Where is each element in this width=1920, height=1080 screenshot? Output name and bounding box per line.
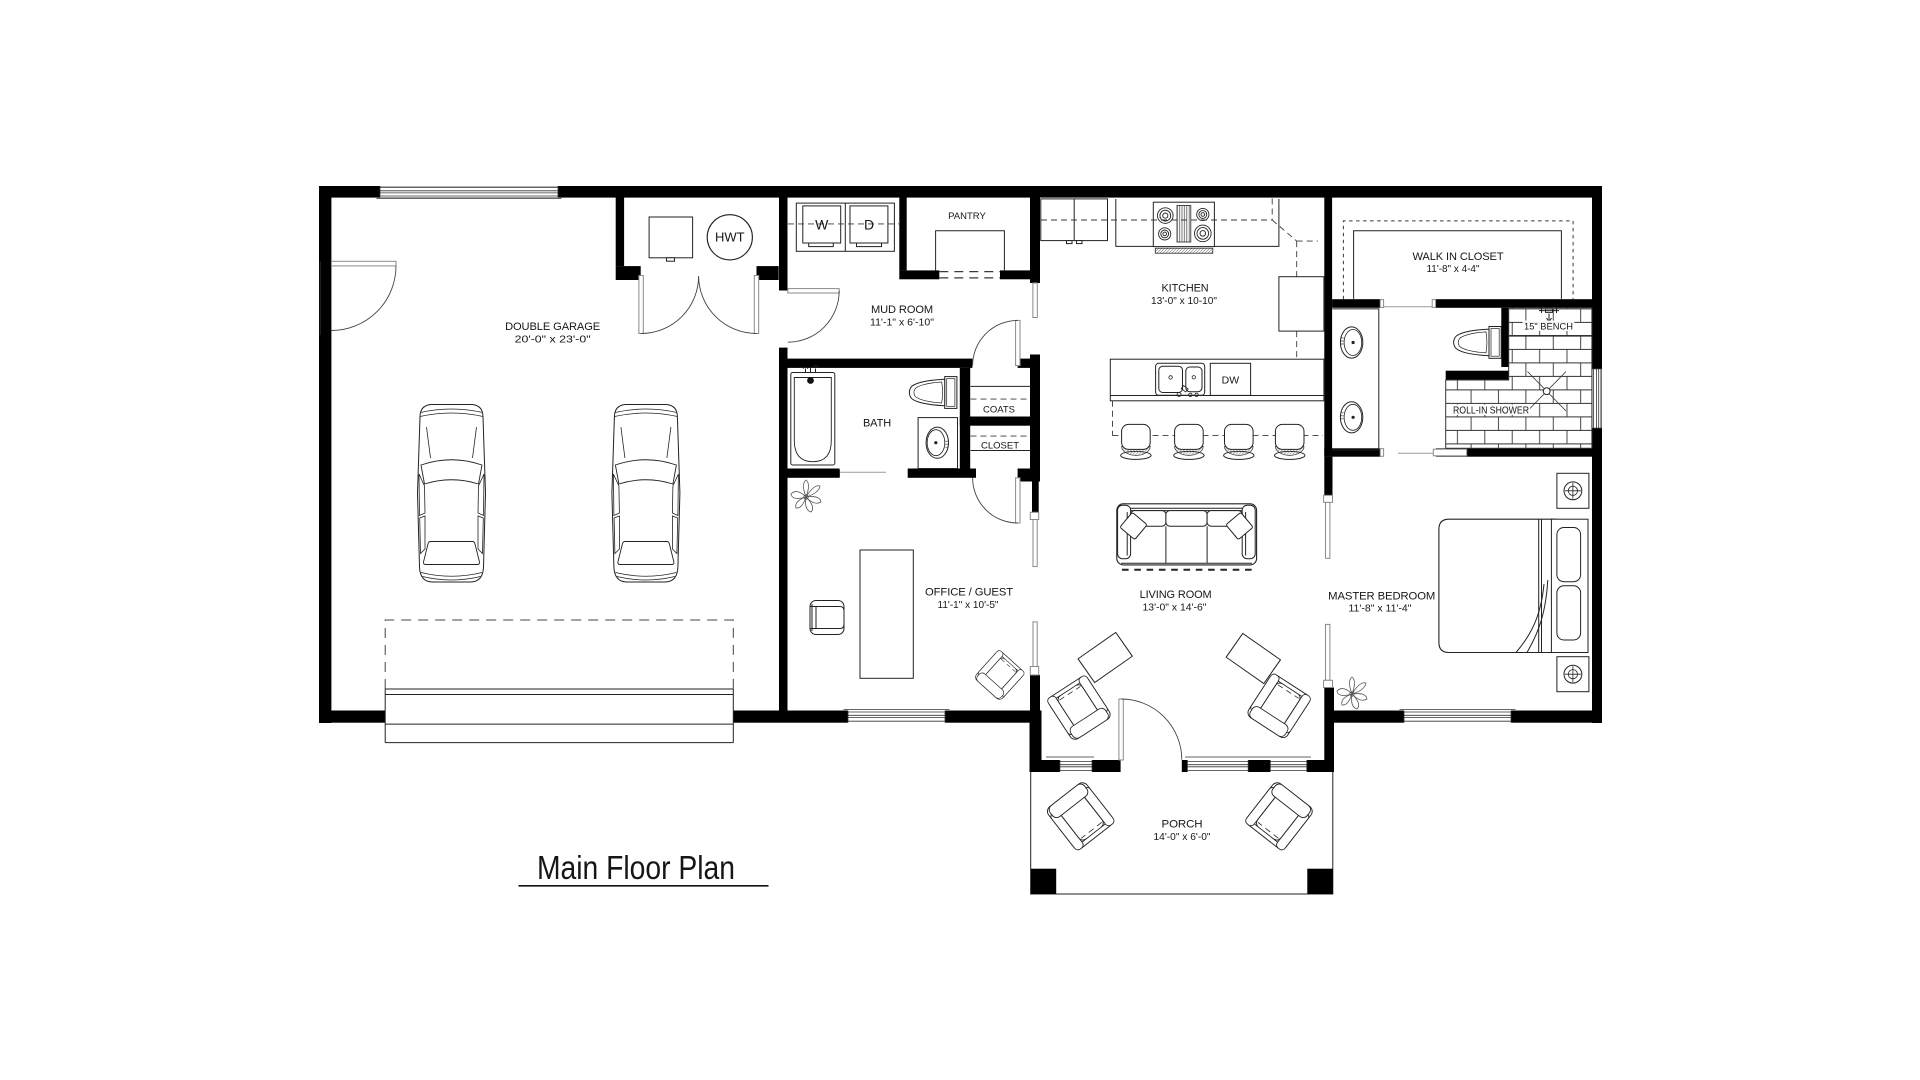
svg-text:PANTRY: PANTRY — [948, 211, 986, 222]
svg-text:DW: DW — [1222, 375, 1240, 387]
svg-text:Main Floor Plan: Main Floor Plan — [537, 849, 735, 886]
svg-text:13'-0" x 14'-6": 13'-0" x 14'-6" — [1143, 602, 1207, 614]
svg-text:OFFICE / GUEST: OFFICE / GUEST — [925, 587, 1013, 599]
svg-text:11'-1" x 10'-5": 11'-1" x 10'-5" — [938, 599, 999, 611]
svg-text:KITCHEN: KITCHEN — [1162, 283, 1209, 295]
svg-text:13'-0" x 10-10": 13'-0" x 10-10" — [1151, 295, 1217, 307]
svg-text:11'-8" x 4-4": 11'-8" x 4-4" — [1427, 263, 1480, 275]
svg-text:14'-0" x 6'-0": 14'-0" x 6'-0" — [1154, 831, 1211, 843]
svg-text:ROLL-IN SHOWER: ROLL-IN SHOWER — [1453, 404, 1529, 416]
svg-text:BATH: BATH — [863, 418, 891, 430]
svg-text:HWT: HWT — [715, 230, 745, 245]
svg-text:COATS: COATS — [983, 405, 1015, 416]
svg-text:11'-1" x 6'-10": 11'-1" x 6'-10" — [870, 317, 934, 329]
svg-text:W: W — [815, 217, 829, 233]
svg-text:LIVING ROOM: LIVING ROOM — [1140, 589, 1212, 601]
svg-text:CLOSET: CLOSET — [981, 440, 1019, 451]
svg-text:11'-8" x 11'-4": 11'-8" x 11'-4" — [1349, 603, 1412, 615]
svg-text:20'-0" x 23'-0": 20'-0" x 23'-0" — [515, 334, 591, 346]
svg-text:MASTER BEDROOM: MASTER BEDROOM — [1328, 591, 1435, 603]
svg-text:PORCH: PORCH — [1162, 819, 1203, 831]
svg-text:MUD ROOM: MUD ROOM — [871, 304, 933, 316]
svg-text:D: D — [864, 217, 874, 233]
svg-text:DOUBLE GARAGE: DOUBLE GARAGE — [505, 321, 600, 333]
svg-text:WALK IN CLOSET: WALK IN CLOSET — [1413, 251, 1504, 263]
svg-text:15" BENCH: 15" BENCH — [1524, 322, 1573, 333]
